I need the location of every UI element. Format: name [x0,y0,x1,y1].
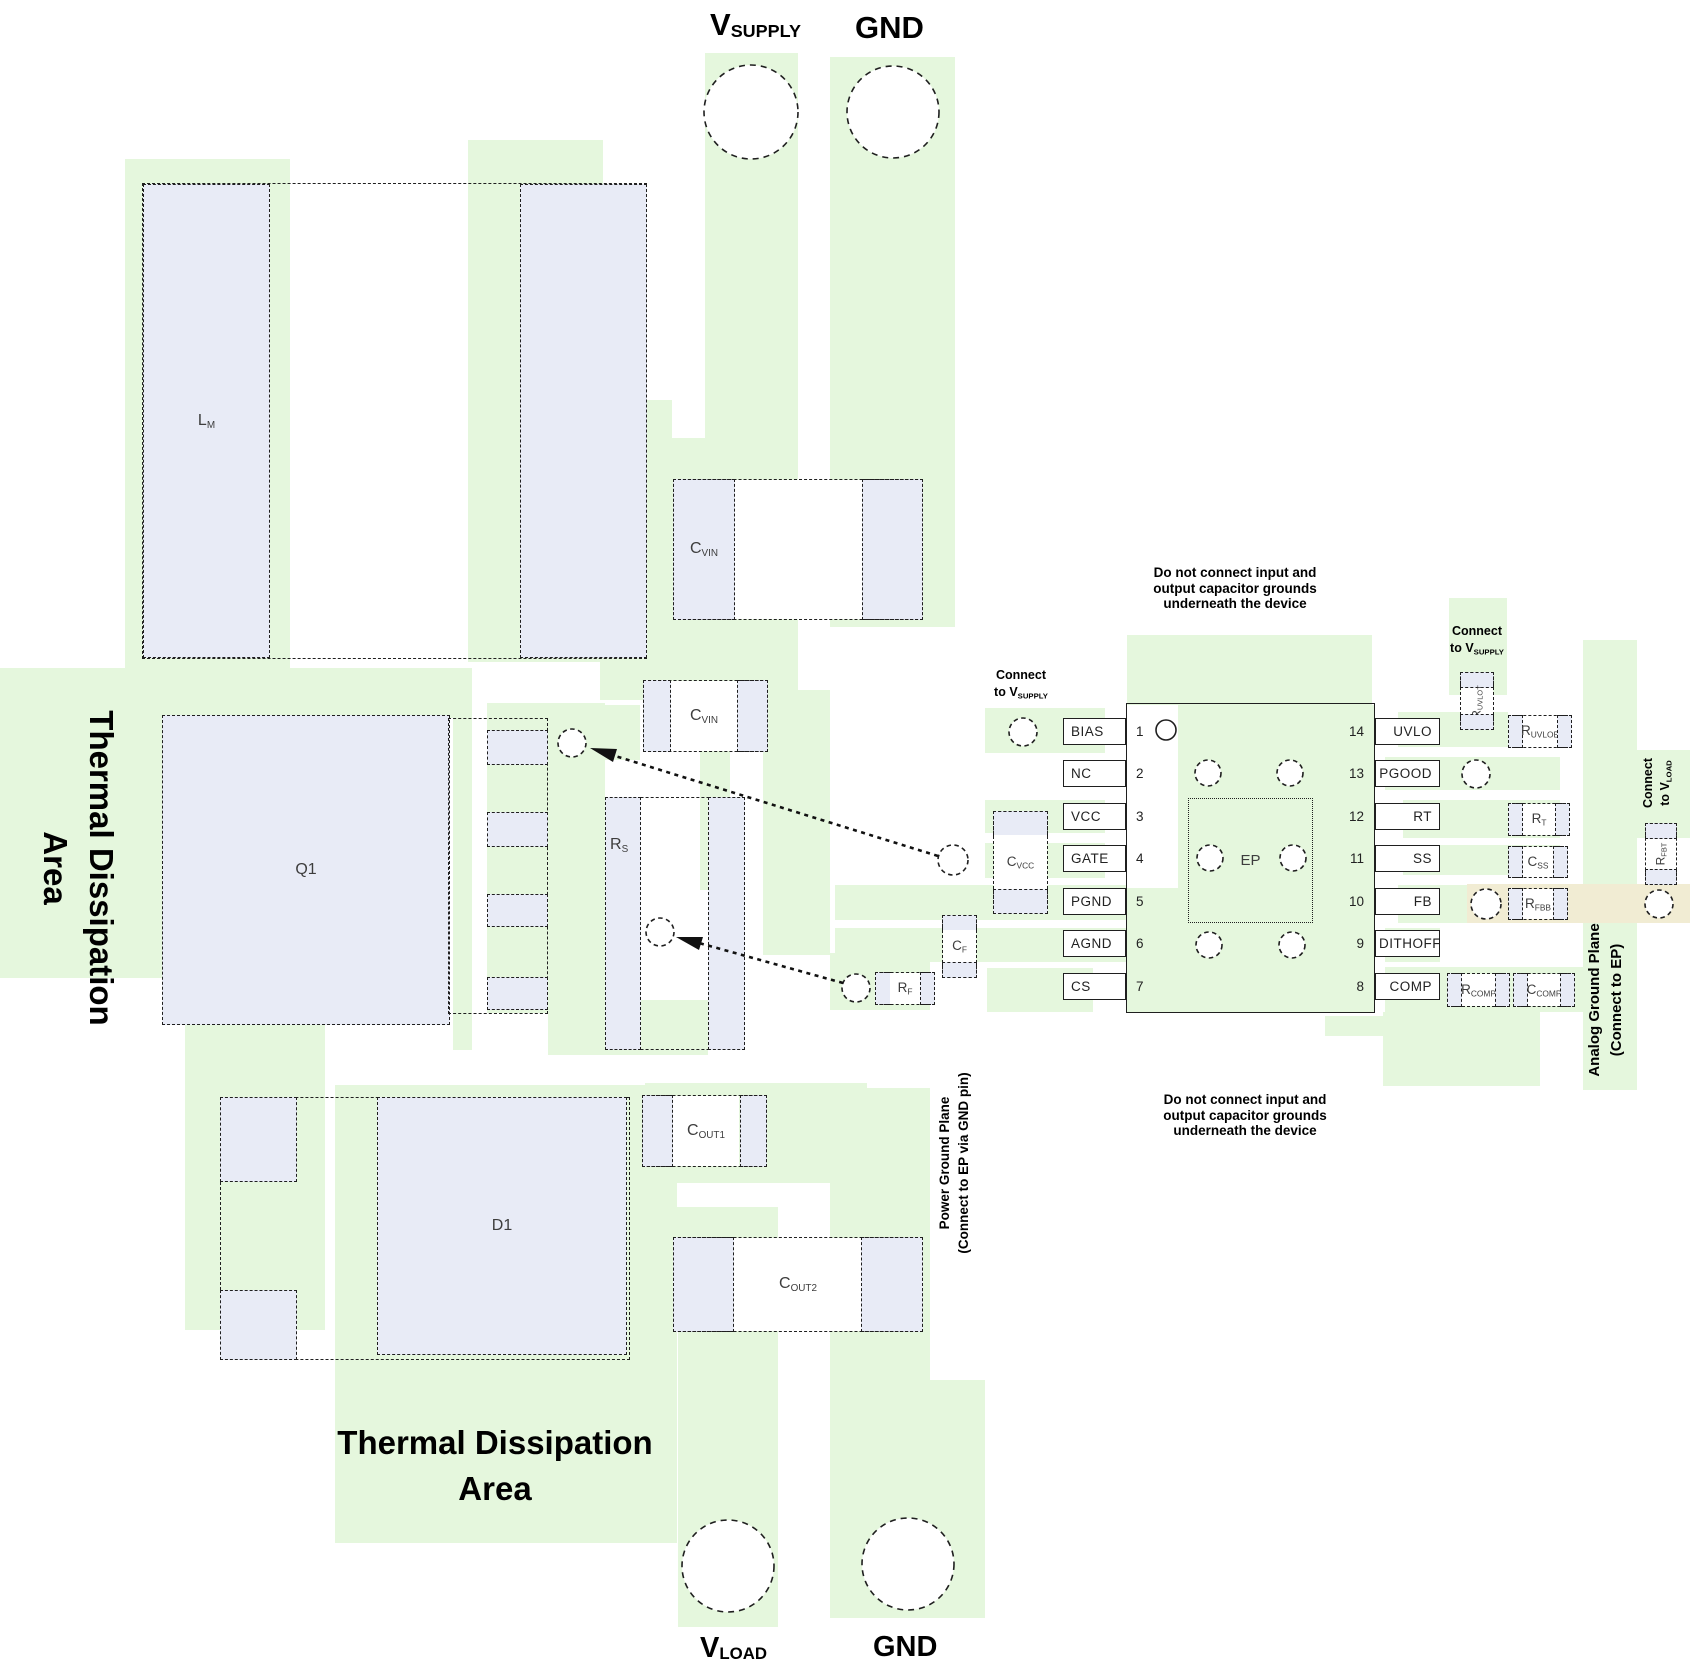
port-label-gnd-top: GND [855,10,924,46]
note-thermal-area-bottom: Thermal Dissipation Area [300,1420,690,1512]
port-label-gnd-bottom: GND [873,1631,937,1664]
via-vload-bottom [682,1520,774,1612]
via-ep-3 [1197,845,1223,871]
net-arrow-gate-line [612,755,938,856]
via-fb [1471,889,1501,919]
net-arrow-cs-head [676,937,703,950]
pin1-marker [1156,720,1176,740]
via-ep-5 [1196,932,1222,958]
note-power-ground-plane: Power Ground Plane (Connect to EP via GN… [935,973,975,1353]
via-gnd-top [847,66,939,158]
port-label-vsupply: VSUPPLY [710,7,801,43]
via-vload-net [1645,890,1673,918]
via-ep-1 [1195,760,1221,786]
note-connect-vload: Connect to VLOAD [1640,728,1680,838]
note-connect-vsupply-left: Connect to VSUPPLY [971,667,1071,704]
via-rs [646,918,674,946]
via-bias-vsupply [1009,718,1037,746]
note-no-cap-grounds-top: Do not connect input and output capacito… [1110,565,1360,612]
via-ep-2 [1277,760,1303,786]
note-analog-ground-plane: Analog Ground Plane (Connect to EP) [1584,790,1628,1210]
port-label-vload: VLOAD [700,1632,767,1665]
via-pgood [1462,760,1490,788]
net-arrow-cs-line [699,943,843,983]
via-q1-drain [558,729,586,757]
note-connect-vsupply-right: Connect to VSUPPLY [1427,623,1527,660]
via-arrow-overlay [0,0,1690,1674]
note-thermal-area-left: Thermal Dissipation Area [32,558,124,1178]
via-cvcc [938,845,968,875]
via-vsupply-top [704,65,798,159]
via-rf [842,974,870,1002]
pcb-layout-diagram: LM Q1 RS CVIN CVIN D1 COUT1 COUT2 [0,0,1690,1674]
note-no-cap-grounds-bottom: Do not connect input and output capacito… [1120,1092,1370,1139]
via-ep-6 [1279,932,1305,958]
net-arrow-gate-head [590,748,617,762]
via-ep-4 [1280,845,1306,871]
via-gnd-bottom [862,1518,954,1610]
